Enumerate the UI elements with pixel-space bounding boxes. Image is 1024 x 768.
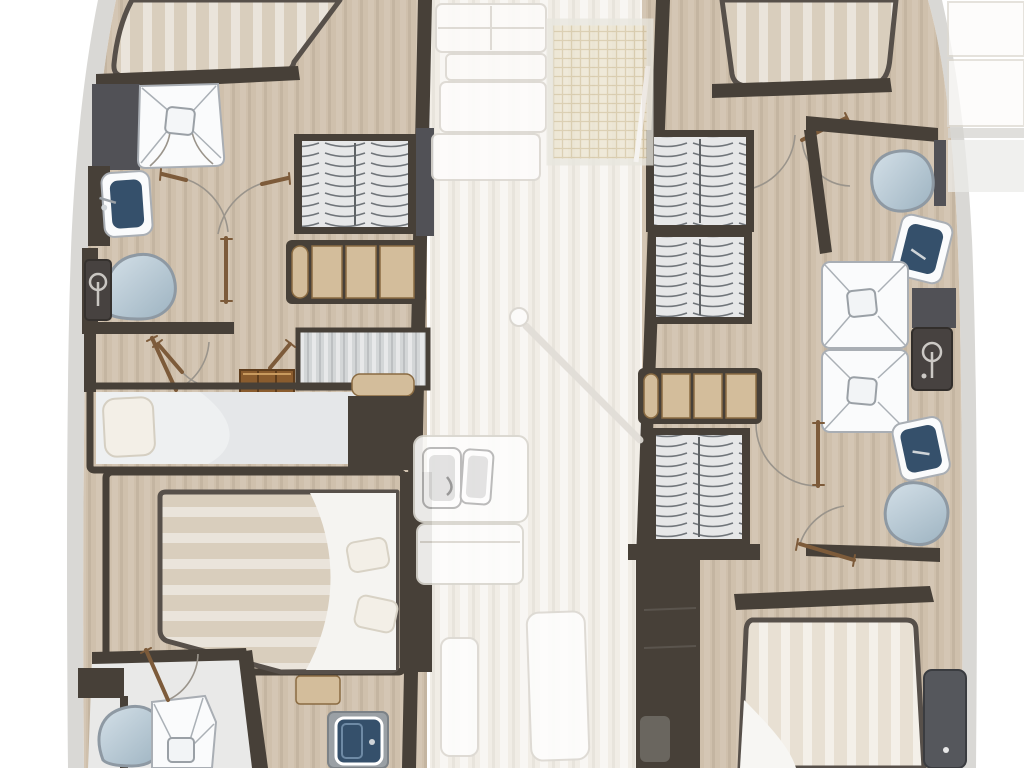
shower-tray [138, 84, 224, 168]
port-nightstand [296, 676, 340, 704]
stbd-shelf-unit [638, 368, 762, 424]
starboard-hull [628, 0, 977, 768]
toilet [106, 254, 175, 319]
head-wall [912, 288, 956, 328]
port-single-berth [90, 374, 414, 470]
trampoline [550, 22, 650, 162]
stbd-hanging-locker-3 [648, 428, 750, 546]
floorplan-svg [0, 0, 1024, 768]
galley [414, 436, 528, 584]
berth-cabinet [348, 396, 414, 470]
shower-tray [822, 350, 908, 432]
stbd-side-cabinet [924, 670, 966, 768]
stbd-hanging-locker-2 [648, 230, 752, 324]
port-mid-bulkhead [84, 322, 234, 334]
pillow [346, 537, 391, 573]
port-aft-head [78, 648, 268, 768]
shower-tray [822, 262, 908, 348]
galley-cabinet [417, 524, 523, 584]
stbd-forward-berth [722, 0, 896, 86]
pillow [353, 594, 399, 634]
head-wall [92, 84, 140, 170]
port-hanging-locker [294, 128, 434, 236]
stbd-hanging-locker-1 [646, 130, 754, 232]
pillow [103, 397, 156, 458]
mixer-panel [912, 328, 952, 390]
berth-shelf [352, 374, 414, 396]
washbasin [98, 170, 153, 237]
port-shelf-unit [286, 240, 426, 304]
shower-tray [152, 696, 216, 768]
bow-seating [432, 4, 546, 180]
port-hull [67, 0, 434, 768]
mixer-panel [85, 260, 111, 320]
aft-deck-boxes [948, 2, 1024, 192]
port-vanity-washbasin [328, 712, 388, 768]
washbasin [891, 415, 952, 482]
